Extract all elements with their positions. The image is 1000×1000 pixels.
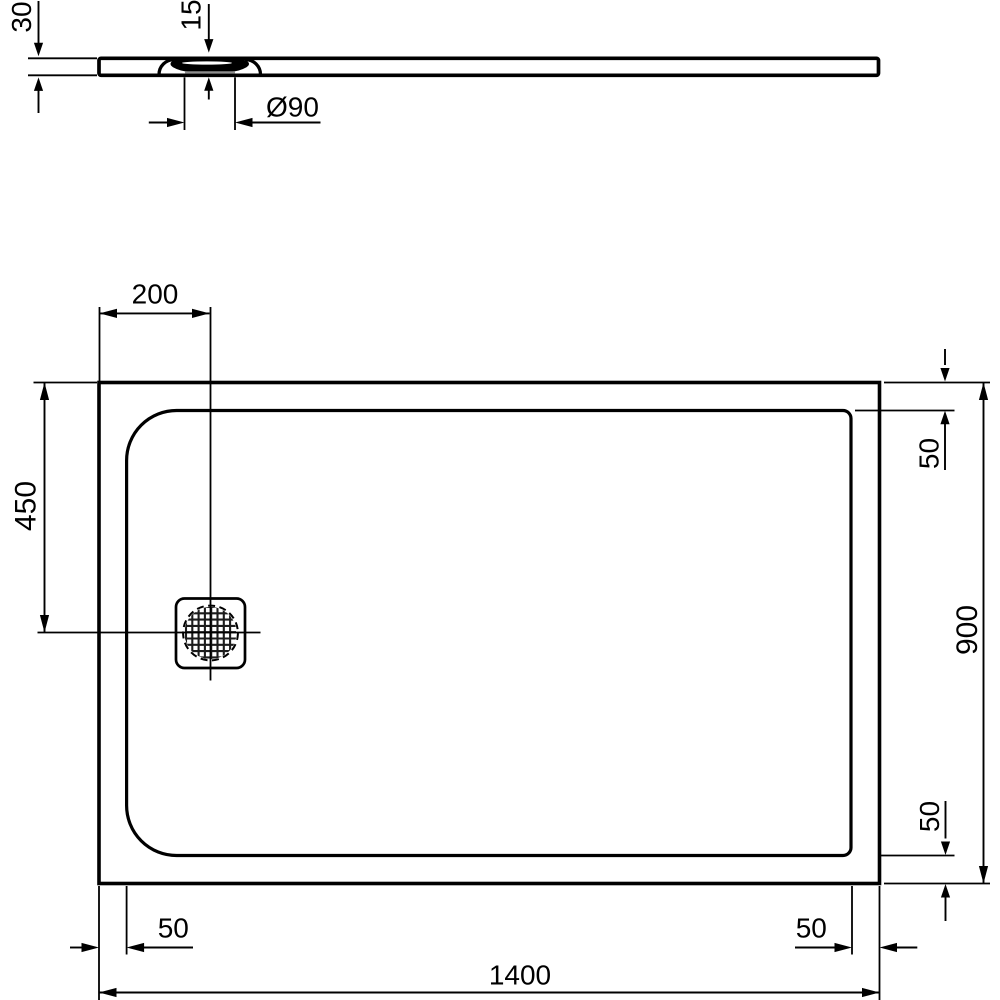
svg-text:50: 50 (914, 801, 945, 832)
svg-text:15: 15 (176, 0, 207, 31)
svg-text:200: 200 (132, 279, 179, 310)
svg-text:900: 900 (951, 605, 984, 655)
svg-text:450: 450 (10, 481, 43, 531)
svg-text:50: 50 (914, 438, 945, 469)
svg-text:30: 30 (6, 1, 37, 32)
svg-text:Ø90: Ø90 (266, 92, 319, 123)
svg-text:1400: 1400 (489, 960, 551, 991)
svg-text:50: 50 (158, 912, 189, 943)
svg-text:50: 50 (796, 912, 827, 943)
